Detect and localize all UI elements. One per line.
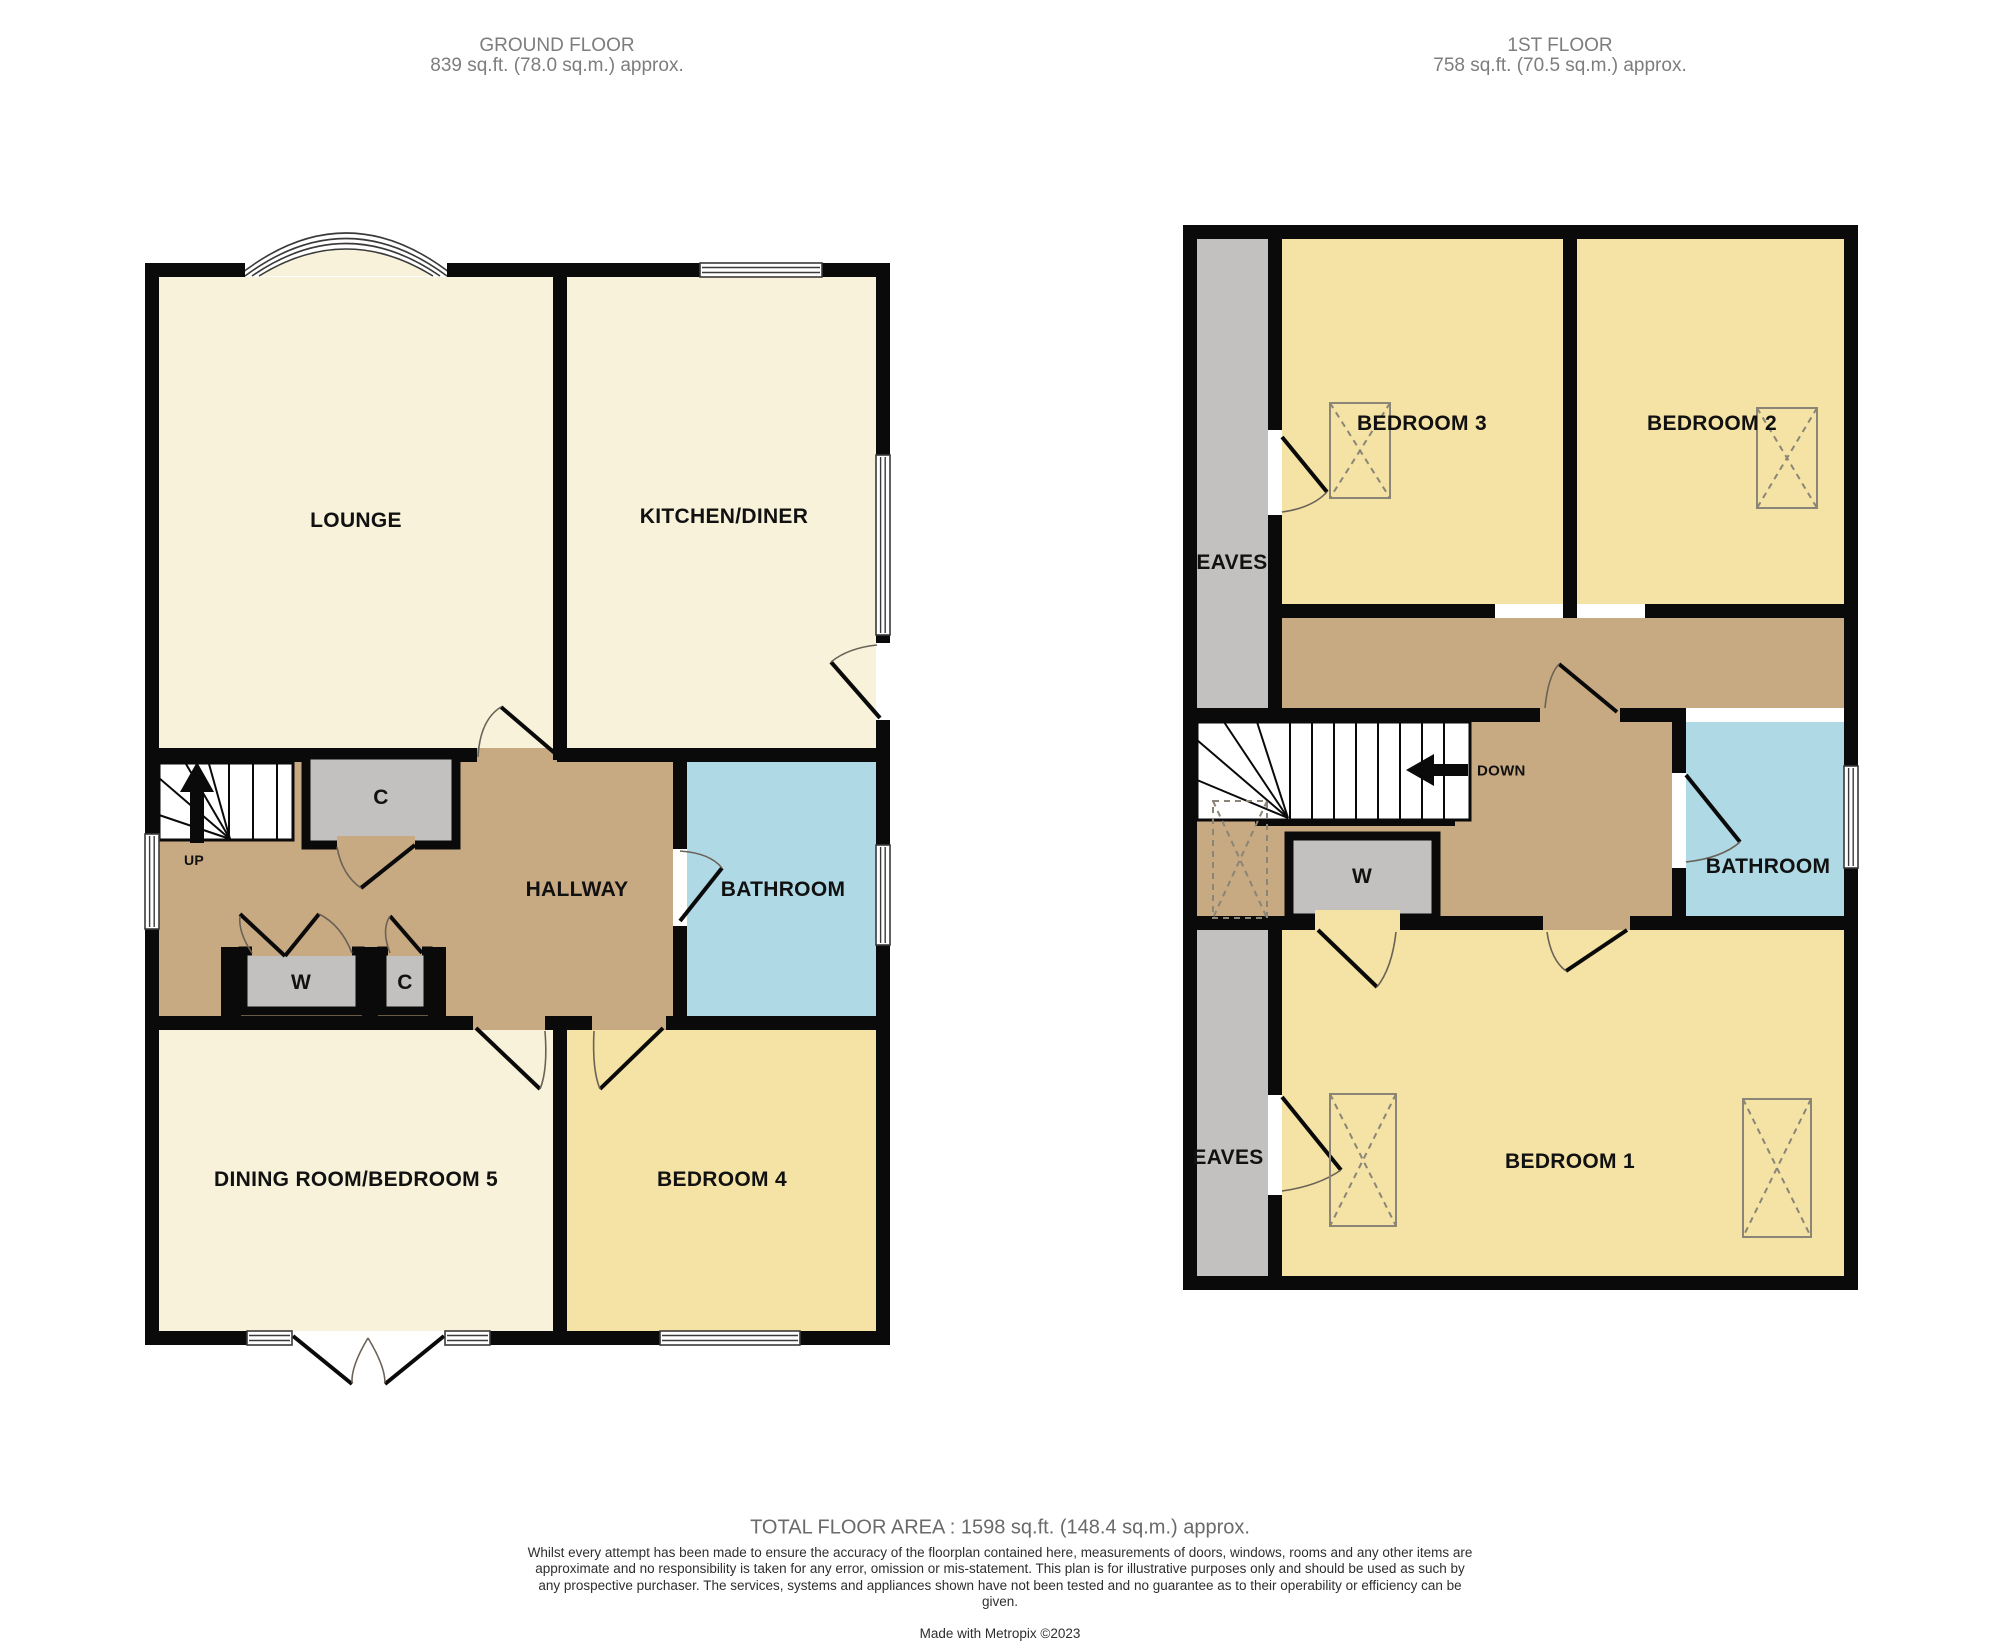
window-dining-right-icon: [445, 1331, 490, 1345]
window-bathroom-1f-icon: [1844, 766, 1858, 868]
cupboard-small-label: C: [397, 971, 412, 995]
disclaimer-text: Whilst every attempt has been made to en…: [525, 1545, 1475, 1611]
cupboard-top-label: C: [373, 786, 388, 810]
wardrobe-gf-label: W: [291, 971, 311, 995]
ground-floor-plan: [145, 233, 890, 1384]
ground-floor-area: 839 sq.ft. (78.0 sq.m.) approx.: [430, 55, 683, 77]
window-bedroom4-icon: [660, 1331, 800, 1345]
dining-label: DINING ROOM/BEDROOM 5: [214, 1168, 498, 1192]
stairs-up-icon: [159, 762, 293, 843]
kitchen-diner-label: KITCHEN/DINER: [640, 505, 808, 529]
first-floor-title: 1ST FLOOR: [1507, 35, 1612, 57]
floorplan-drawing: [0, 0, 2000, 1644]
window-bathroom-gf-icon: [876, 845, 890, 945]
down-label: DOWN: [1477, 763, 1526, 780]
eaves-top-area: [1197, 239, 1268, 708]
window-kitchen-top-icon: [700, 263, 822, 277]
first-floor-area: 758 sq.ft. (70.5 sq.m.) approx.: [1433, 55, 1686, 77]
bedroom2-label: BEDROOM 2: [1647, 412, 1777, 436]
bathroom-1f-room: [1686, 722, 1844, 916]
bedroom1-label: BEDROOM 1: [1505, 1150, 1635, 1174]
bedroom1-room: [1282, 930, 1844, 1276]
window-left-icon: [145, 834, 159, 929]
bedroom3-label: BEDROOM 3: [1357, 412, 1487, 436]
total-floor-area: TOTAL FLOOR AREA : 1598 sq.ft. (148.4 sq…: [750, 1517, 1250, 1540]
wardrobe-1f-label: W: [1352, 865, 1372, 889]
first-floor-plan: [1183, 225, 1858, 1290]
ground-floor-title: GROUND FLOOR: [479, 35, 634, 57]
bathroom-gf-label: BATHROOM: [721, 878, 846, 902]
floorplan-page: GROUND FLOOR 839 sq.ft. (78.0 sq.m.) app…: [0, 0, 2000, 1644]
bedroom4-label: BEDROOM 4: [657, 1168, 787, 1192]
landing-strip: [1282, 618, 1844, 708]
window-kitchen-right-icon: [876, 455, 890, 635]
bathroom-1f-label: BATHROOM: [1706, 855, 1831, 879]
window-dining-left-icon: [247, 1331, 292, 1345]
eaves-bottom-label: EAVES: [1192, 1146, 1263, 1170]
hallway-label: HALLWAY: [526, 878, 629, 902]
eaves-bottom-area: [1197, 930, 1268, 1276]
first-windows: [1844, 766, 1858, 868]
eaves-top-label: EAVES: [1196, 551, 1267, 575]
bay-window-icon: [238, 233, 454, 276]
credit-text: Made with Metropix ©2023: [920, 1626, 1081, 1641]
up-label: UP: [184, 852, 204, 868]
lounge-label: LOUNGE: [310, 509, 402, 533]
